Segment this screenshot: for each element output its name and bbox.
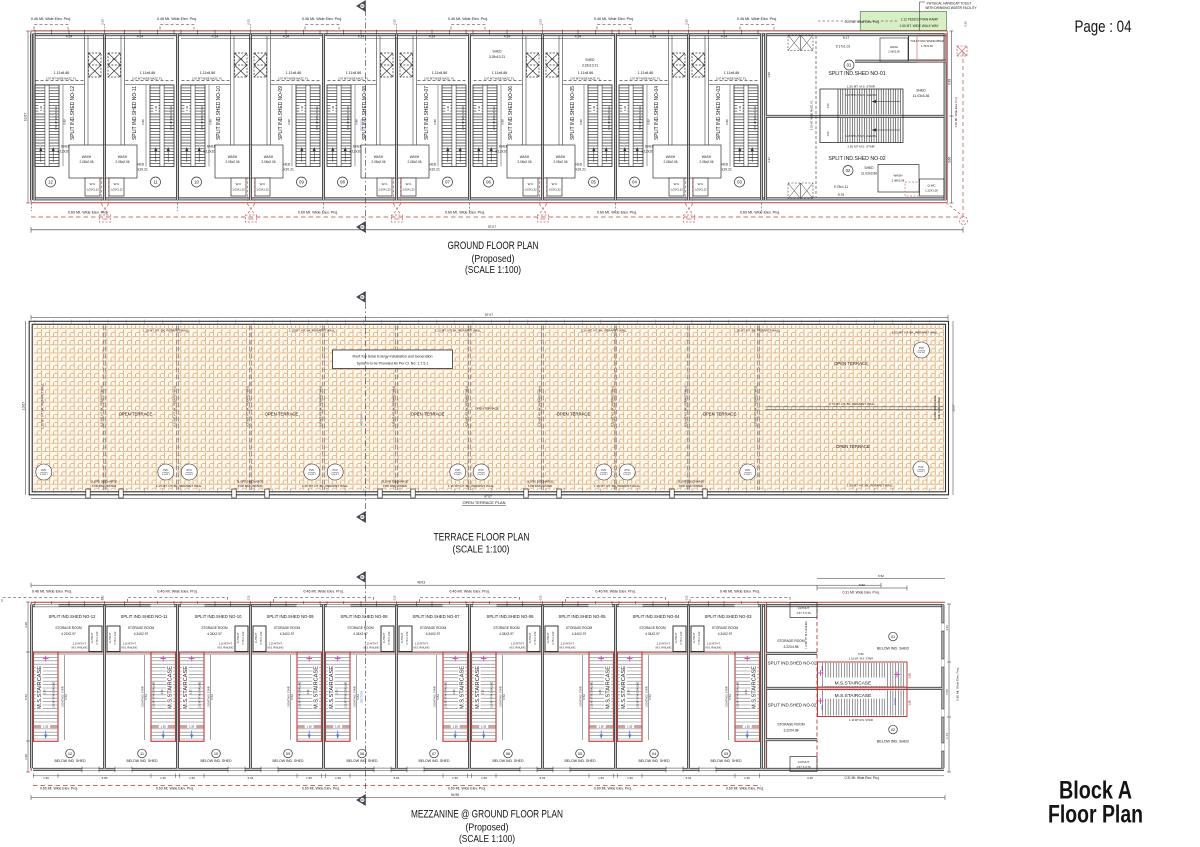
svg-text:OPEN TERRACE: OPEN TERRACE (265, 411, 299, 416)
svg-text:M.S.STAIRCASE: M.S.STAIRCASE (37, 665, 43, 709)
svg-text:2.97 MT WIDE MAZZ. FL.: 2.97 MT WIDE MAZZ. FL. (132, 76, 163, 80)
svg-text:0.23 MT. HT. BK. PERAPET WALL: 0.23 MT. HT. BK. PERAPET WALL (464, 385, 468, 427)
svg-text:0.60 Mt. Wide Elev. Proj.: 0.60 Mt. Wide Elev. Proj. (594, 787, 632, 791)
svg-text:SPLIT IND.SHED NO-11: SPLIT IND.SHED NO-11 (121, 614, 169, 619)
svg-text:M.S.STAIRCASE: M.S.STAIRCASE (751, 665, 757, 709)
svg-text:1.30: 1.30 (628, 689, 631, 694)
svg-text:0.60 Mt. Wide Elev. Proj.: 0.60 Mt. Wide Elev. Proj. (156, 787, 194, 791)
svg-text:D.H.W.T: D.H.W.T (744, 474, 753, 476)
svg-text:W.C: W.C (674, 182, 680, 186)
svg-text:1.50: 1.50 (599, 724, 605, 728)
svg-text:OPEN TERRACE: OPEN TERRACE (703, 411, 737, 416)
svg-text:RWP: RWP (102, 218, 108, 221)
svg-text:SPLIT IND.SHED NO-11: SPLIT IND.SHED NO-11 (132, 86, 138, 140)
svg-text:SPLIT IND.SHED NO-01: SPLIT IND.SHED NO-01 (768, 660, 817, 665)
svg-text:2.97 MT WIDE MAZZ. FL.: 2.97 MT WIDE MAZZ. FL. (424, 76, 455, 80)
svg-text:1.50 MT M.S. STAIR: 1.50 MT M.S. STAIR (433, 686, 436, 707)
svg-text:6.52: 6.52 (290, 694, 294, 700)
svg-text:SHED: SHED (492, 50, 502, 54)
svg-text:07: 07 (445, 180, 450, 185)
svg-text:1.00X1.22: 1.00X1.22 (524, 188, 537, 192)
svg-text:1.10 MT HT.: 1.10 MT HT. (219, 642, 233, 645)
svg-text:1.15 MT HT. M.S. RAILING: 1.15 MT HT. M.S. RAILING (845, 134, 876, 138)
svg-text:1.50 MT W.S. STAIR: 1.50 MT W.S. STAIR (346, 106, 350, 130)
svg-text:1.11x8.86: 1.11x8.86 (638, 71, 654, 75)
svg-text:W.C: W.C (114, 182, 120, 186)
svg-text:0.70 MT. HT. BK. PERAPET WALL: 0.70 MT. HT. BK. PERAPET WALL (829, 402, 876, 406)
svg-text:1.15 MT. HT. BK. PERAPET WALL: 1.15 MT. HT. BK. PERAPET WALL (435, 328, 482, 332)
svg-text:0.46 Mt. Wide Elev. Proj.: 0.46 Mt. Wide Elev. Proj. (302, 17, 342, 21)
svg-text:1.30: 1.30 (307, 689, 310, 694)
svg-text:5.80: 5.80 (102, 776, 108, 780)
svg-text:6.52: 6.52 (582, 694, 586, 700)
svg-text:0.23: 0.23 (101, 19, 105, 25)
svg-text:WASH: WASH (118, 155, 128, 159)
svg-text:9.17x1.01: 9.17x1.01 (836, 44, 851, 48)
svg-text:1.00X1.22: 1.00X1.22 (548, 188, 561, 192)
svg-text:1.10 MT HT.: 1.10 MT HT. (707, 642, 721, 645)
svg-text:9.75: 9.75 (838, 193, 845, 197)
svg-text:1.50 MT HT M.S RAILING: 1.50 MT HT M.S RAILING (491, 681, 494, 708)
svg-text:BELOW IND. SHED: BELOW IND. SHED (711, 759, 743, 763)
svg-text:STORAGE ROOM: STORAGE ROOM (201, 626, 228, 630)
svg-text:1.30: 1.30 (599, 689, 602, 694)
svg-text:WASH: WASH (890, 45, 898, 49)
svg-text:6.88: 6.88 (141, 119, 145, 125)
svg-text:1.50: 1.50 (306, 776, 312, 780)
svg-text:0.60 Mt. Wide Elev. Proj.: 0.60 Mt. Wide Elev. Proj. (302, 787, 340, 791)
svg-text:OPEN TERRACE PLAN: OPEN TERRACE PLAN (462, 500, 505, 505)
svg-text:5.52: 5.52 (878, 574, 884, 578)
svg-text:02: 02 (846, 168, 851, 173)
svg-text:BELOW IND. SHED: BELOW IND. SHED (565, 759, 597, 763)
svg-text:D.H.W.T: D.H.W.T (917, 471, 926, 473)
svg-text:02: 02 (891, 727, 895, 732)
svg-text:SPLIT IND.SHED NO-08: SPLIT IND.SHED NO-08 (341, 614, 389, 619)
svg-text:1.50 MT HT M.S RAILING: 1.50 MT HT M.S RAILING (637, 681, 640, 708)
svg-text:M.S.STAIRCASE: M.S.STAIRCASE (167, 665, 173, 709)
svg-text:4.37: 4.37 (767, 157, 771, 163)
svg-text:1.50: 1.50 (627, 776, 633, 780)
svg-text:CUTOUT: CUTOUT (237, 632, 240, 643)
svg-text:1.56: 1.56 (908, 700, 912, 706)
svg-text:0.46 Mt. Wide Elev. Proj.: 0.46 Mt. Wide Elev. Proj. (720, 590, 760, 594)
svg-text:M.S. RAILING: M.S. RAILING (510, 646, 526, 649)
svg-text:0.76 X 1.52: 0.76 X 1.52 (552, 631, 555, 644)
svg-text:1.10 MT HT.: 1.10 MT HT. (123, 642, 137, 645)
svg-text:05: 05 (578, 751, 582, 756)
svg-text:0.23 MT. HT. BK. PERAPET WALL: 0.23 MT. HT. BK. PERAPET WALL (391, 385, 395, 427)
svg-text:1.50 MT W.S. STAIR: 1.50 MT W.S. STAIR (54, 106, 58, 130)
svg-text:PVC: PVC (745, 469, 750, 472)
svg-text:1.50: 1.50 (826, 103, 830, 109)
svg-text:0.46 Mt. Wide Elev. Proj.: 0.46 Mt. Wide Elev. Proj. (594, 17, 634, 21)
svg-text:1.10 MT HT.: 1.10 MT HT. (269, 642, 283, 645)
svg-text:0.46 Mt. Wide Elev. Proj.: 0.46 Mt. Wide Elev. Proj. (737, 17, 777, 21)
svg-text:SPLIT IND.SHED NO-09: SPLIT IND.SHED NO-09 (267, 614, 315, 619)
svg-text:D.H.W.T: D.H.W.T (623, 474, 632, 476)
svg-text:4.34X2.97: 4.34X2.97 (280, 632, 295, 636)
svg-text:1.32: 1.32 (39, 105, 43, 111)
svg-text:0.23 MT. HT. BK. PERAPET WALL: 0.23 MT. HT. BK. PERAPET WALL (683, 385, 687, 427)
svg-text:1.32: 1.32 (185, 105, 189, 111)
svg-text:01: 01 (847, 63, 852, 68)
svg-text:1.50 MT W.S. STAIR: 1.50 MT W.S. STAIR (638, 106, 642, 130)
svg-text:OPEN TERRACE: OPEN TERRACE (119, 411, 153, 416)
svg-text:OPEN TERRACE: OPEN TERRACE (557, 411, 591, 416)
svg-text:11.03x3.36: 11.03x3.36 (913, 94, 930, 98)
svg-text:SHED: SHED (916, 89, 926, 93)
svg-text:2.08x2.06: 2.08x2.06 (79, 160, 93, 164)
svg-text:SPLIT IND.SHED NO-02: SPLIT IND.SHED NO-02 (768, 703, 817, 708)
svg-text:PVC: PVC (918, 466, 923, 469)
svg-text:1.50: 1.50 (43, 776, 49, 780)
svg-text:(Proposed): (Proposed) (466, 823, 509, 834)
svg-text:SLOPE DISCHARGE: SLOPE DISCHARGE (382, 479, 409, 483)
svg-text:1.11x8.86: 1.11x8.86 (432, 71, 448, 75)
svg-text:OPEN TERRACE: OPEN TERRACE (475, 407, 499, 411)
svg-text:01: 01 (891, 634, 895, 639)
svg-text:1.00X1.22: 1.00X1.22 (402, 188, 415, 192)
svg-text:0.76 X 1.52: 0.76 X 1.52 (698, 631, 701, 644)
svg-text:1.32: 1.32 (331, 105, 335, 111)
svg-text:1.15 MT. HT. BK. PERAPET WALL: 1.15 MT. HT. BK. PERAPET WALL (156, 484, 203, 488)
svg-text:2.97 MT WIDE MAZZ. FL.: 2.97 MT WIDE MAZZ. FL. (630, 76, 661, 80)
svg-text:0.23: 0.23 (393, 19, 397, 25)
svg-text:PVC: PVC (625, 469, 630, 472)
svg-text:W.C: W.C (260, 182, 266, 186)
svg-text:STORAGE ROOM: STORAGE ROOM (712, 626, 739, 630)
svg-text:1.55 MT. HT. BK. PERAPET WALL: 1.55 MT. HT. BK. PERAPET WALL (847, 483, 894, 487)
svg-text:12: 12 (68, 751, 72, 756)
svg-text:6.88: 6.88 (287, 119, 291, 125)
svg-text:3.23x10.21: 3.23x10.21 (582, 64, 598, 68)
svg-text:PVC: PVC (309, 469, 314, 472)
svg-text:D.H.W.T: D.H.W.T (918, 352, 927, 354)
svg-text:4.80: 4.80 (767, 72, 771, 78)
svg-text:1.15 MT. HT. BK. PERAPET WALL: 1.15 MT. HT. BK. PERAPET WALL (143, 328, 190, 332)
svg-text:OPEN TERRACE: OPEN TERRACE (834, 361, 868, 366)
svg-text:1.10 MT HT.: 1.10 MT HT. (511, 642, 525, 645)
svg-text:WASH: WASH (520, 155, 530, 159)
svg-text:6.52: 6.52 (144, 694, 148, 700)
svg-text:0.76 X 1.52: 0.76 X 1.52 (260, 631, 263, 644)
svg-text:CUTOUT: CUTOUT (255, 632, 258, 643)
svg-text:1.55 MT. HT. BK. PERAPET WALL: 1.55 MT. HT. BK. PERAPET WALL (892, 330, 939, 334)
svg-text:1.32: 1.32 (300, 105, 304, 111)
svg-text:D.H.W.T: D.H.W.T (40, 474, 49, 476)
svg-text:10: 10 (194, 180, 199, 185)
svg-text:FOR RAIN WATER: FOR RAIN WATER (238, 484, 262, 488)
svg-text:1.00X1.22: 1.00X1.22 (232, 188, 245, 192)
svg-text:SLOPE DISCHARGE: SLOPE DISCHARGE (678, 479, 705, 483)
svg-text:0.76 X 1.52: 0.76 X 1.52 (114, 631, 117, 644)
svg-text:1.15 MT. HT. BK. PERAPET WALL: 1.15 MT. HT. BK. PERAPET WALL (302, 484, 349, 488)
svg-text:03: 03 (737, 180, 742, 185)
svg-text:1.50 MT W.S. STAIR: 1.50 MT W.S. STAIR (315, 106, 319, 130)
svg-text:M.S.STAIRCASE: M.S.STAIRCASE (621, 665, 627, 709)
svg-text:4.34: 4.34 (66, 35, 73, 39)
svg-text:BELOW IND. SHED: BELOW IND. SHED (877, 740, 910, 744)
svg-text:49.03: 49.03 (417, 581, 425, 585)
svg-text:SECTION: SECTION (359, 414, 363, 426)
svg-text:1.50: 1.50 (161, 724, 167, 728)
svg-text:1.50: 1.50 (745, 724, 751, 728)
svg-text:CUTOUT: CUTOUT (529, 632, 532, 643)
svg-text:1.50 MT W.S. STAIR: 1.50 MT W.S. STAIR (607, 106, 611, 130)
svg-text:3.45: 3.45 (807, 776, 813, 780)
svg-text:PVC: PVC (919, 347, 924, 350)
svg-text:4.34: 4.34 (137, 35, 144, 39)
svg-text:4.34: 4.34 (575, 35, 582, 39)
svg-text:1.11x8.86: 1.11x8.86 (54, 71, 70, 75)
svg-text:WASH: WASH (666, 155, 676, 159)
svg-text:3.25x10.21: 3.25x10.21 (489, 55, 505, 59)
svg-text:6.88: 6.88 (725, 119, 729, 125)
svg-text:1.50: 1.50 (452, 776, 458, 780)
svg-text:0.76 X 1.52: 0.76 X 1.52 (680, 631, 683, 644)
svg-text:1.00X1.22: 1.00X1.22 (110, 188, 123, 192)
svg-text:System to be Provided As Per C: System to be Provided As Per Cl. No: 1.7… (357, 361, 429, 365)
svg-text:1.50: 1.50 (335, 724, 341, 728)
svg-text:54.96: 54.96 (451, 793, 459, 797)
svg-text:PVC: PVC (479, 469, 484, 472)
svg-text:OPEN TERRACE: OPEN TERRACE (411, 411, 445, 416)
svg-text:SHED: SHED (585, 58, 595, 62)
svg-text:4.34: 4.34 (358, 35, 365, 39)
svg-text:1.15 MT. HT. BK. PERAPET WALL: 1.15 MT. HT. BK. PERAPET WALL (41, 383, 45, 430)
svg-text:2.08x2.06: 2.08x2.06 (553, 160, 567, 164)
svg-text:6.52: 6.52 (210, 694, 214, 700)
svg-text:PVC: PVC (163, 469, 168, 472)
svg-text:3.22X4.98: 3.22X4.98 (783, 728, 798, 732)
svg-text:1.50: 1.50 (335, 776, 341, 780)
svg-text:0.23: 0.23 (102, 595, 105, 600)
svg-text:1.10 MT. M.S. STAIR: 1.10 MT. M.S. STAIR (849, 657, 873, 661)
svg-text:M.S. RAILING: M.S. RAILING (72, 646, 88, 649)
svg-text:D.H.W.T: D.H.W.T (308, 474, 317, 476)
svg-text:4.34: 4.34 (721, 35, 728, 39)
svg-text:07: 07 (432, 751, 436, 756)
svg-text:0.60 Mt. Wide Elev. Proj.: 0.60 Mt. Wide Elev. Proj. (445, 210, 485, 214)
svg-text:4.34X2.97: 4.34X2.97 (572, 632, 587, 636)
svg-text:M.S.STAIRCASE: M.S.STAIRCASE (605, 665, 611, 709)
svg-text:0.21 Mt. Wide Elev. Proj.: 0.21 Mt. Wide Elev. Proj. (845, 20, 880, 24)
svg-text:CUTOUT: CUTOUT (401, 632, 404, 643)
svg-text:1.50 MT W.S. STAIR: 1.50 MT W.S. STAIR (200, 106, 204, 130)
svg-text:1.50 MT W.S. STAIR: 1.50 MT W.S. STAIR (461, 106, 465, 130)
svg-text:3.20: 3.20 (24, 622, 28, 628)
svg-text:1.50 MT W.S. STAIR: 1.50 MT W.S. STAIR (169, 106, 173, 130)
svg-text:1.00X1.22: 1.00X1.22 (256, 188, 269, 192)
svg-text:Q-WC: Q-WC (927, 183, 935, 187)
svg-text:0.60 Mt. Wide Elev. Proj.: 0.60 Mt. Wide Elev. Proj. (597, 210, 637, 214)
svg-text:10.67: 10.67 (952, 404, 956, 412)
svg-text:SLOPE DISCHARGE: SLOPE DISCHARGE (91, 479, 118, 483)
svg-text:CUTOUT: CUTOUT (675, 632, 678, 643)
svg-text:0.76 X 1.52: 0.76 X 1.52 (388, 631, 391, 644)
svg-text:1.11x8.86: 1.11x8.86 (140, 71, 156, 75)
svg-text:1.57 X 0.76: 1.57 X 0.76 (796, 611, 811, 615)
svg-text:Floor Plan: Floor Plan (1048, 802, 1143, 829)
svg-text:STORAGE ROOM: STORAGE ROOM (777, 639, 804, 643)
svg-text:1.50 MT M.S. STAIR: 1.50 MT M.S. STAIR (499, 686, 502, 707)
svg-text:OPEN TERRACE: OPEN TERRACE (836, 444, 870, 449)
svg-text:4.34: 4.34 (650, 35, 657, 39)
svg-text:1.50: 1.50 (307, 724, 313, 728)
svg-text:WASH: WASH (894, 174, 903, 178)
svg-text:1.15 MT. HT. BK. PERAPET WALL: 1.15 MT. HT. BK. PERAPET WALL (581, 328, 628, 332)
svg-text:2.08x2.06: 2.08x2.06 (663, 160, 677, 164)
svg-text:11: 11 (140, 751, 144, 756)
svg-text:GROUND FLOOR PLAN: GROUND FLOOR PLAN (448, 240, 539, 252)
svg-text:1.58: 1.58 (908, 673, 912, 679)
svg-text:1.30: 1.30 (161, 689, 164, 694)
svg-text:M.S.STAIRCASE: M.S.STAIRCASE (835, 680, 872, 686)
svg-text:1.11x8.86: 1.11x8.86 (724, 71, 740, 75)
svg-text:1.50: 1.50 (189, 724, 195, 728)
svg-text:0.23: 0.23 (394, 595, 397, 600)
svg-text:4.34X2.97: 4.34X2.97 (134, 632, 149, 636)
svg-text:1.11x8.86: 1.11x8.86 (578, 71, 594, 75)
svg-text:1.50: 1.50 (744, 776, 750, 780)
svg-text:3.22X4.98: 3.22X4.98 (783, 645, 798, 649)
svg-text:0.23 MT. HT. BK. PERAPET WALL: 0.23 MT. HT. BK. PERAPET WALL (245, 385, 249, 427)
svg-text:1.50 MT W.S. STAIR: 1.50 MT W.S. STAIR (753, 106, 757, 130)
svg-text:2.08x2.06: 2.08x2.06 (517, 160, 531, 164)
svg-text:1.50: 1.50 (481, 724, 487, 728)
svg-text:SPLIT IND.SHED NO-03: SPLIT IND.SHED NO-03 (716, 86, 722, 140)
svg-text:0.46 Mt. Wide Elev. Proj.: 0.46 Mt. Wide Elev. Proj. (595, 590, 635, 594)
svg-text:1.50 MT HT M.S RAILING: 1.50 MT HT M.S RAILING (444, 681, 447, 708)
svg-text:1.10 MT HT.: 1.10 MT HT. (657, 642, 671, 645)
svg-text:6.52: 6.52 (648, 694, 652, 700)
svg-text:1.15 MT HT. M.S. RAILING: 1.15 MT HT. M.S. RAILING (845, 93, 876, 97)
svg-text:2.97 MT WIDE MAZZ. FL.: 2.97 MT WIDE MAZZ. FL. (570, 76, 601, 80)
svg-text:0.46 Mt. Wide Elev. Proj.: 0.46 Mt. Wide Elev. Proj. (32, 590, 72, 594)
svg-text:STORAGE ROOM: STORAGE ROOM (128, 626, 155, 630)
svg-text:BELOW IND. SHED: BELOW IND. SHED (639, 759, 671, 763)
svg-text:0.46 Mt. Wide Elev. Proj.: 0.46 Mt. Wide Elev. Proj. (157, 590, 197, 594)
svg-text:SPLIT IND.SHED NO-02: SPLIT IND.SHED NO-02 (828, 156, 885, 162)
svg-text:1.15 MT. HT. BK. PERAPET WALL: 1.15 MT. HT. BK. PERAPET WALL (734, 328, 781, 332)
svg-text:SPLIT IND.SHED NO-07: SPLIT IND.SHED NO-07 (424, 86, 430, 140)
svg-text:4.34X2.97: 4.34X2.97 (499, 632, 514, 636)
svg-text:97.07: 97.07 (485, 313, 493, 317)
svg-text:1.11x8.86: 1.11x8.86 (286, 71, 302, 75)
svg-text:RWP: RWP (540, 218, 546, 221)
svg-text:0.31 Mt. Wide Elev. Proj.: 0.31 Mt. Wide Elev. Proj. (845, 776, 880, 780)
svg-text:0.23: 0.23 (540, 595, 543, 600)
svg-text:2.97 MT WIDE MAZZ. FL.: 2.97 MT WIDE MAZZ. FL. (484, 76, 515, 80)
svg-text:1.10 MT HT.: 1.10 MT HT. (365, 642, 379, 645)
svg-text:FOR RAIN WATER: FOR RAIN WATER (679, 484, 703, 488)
svg-text:1.50: 1.50 (43, 724, 49, 728)
svg-text:1.10 MT HT.: 1.10 MT HT. (73, 642, 87, 645)
svg-text:WITH DRINKING WATER FACILITY: WITH DRINKING WATER FACILITY (925, 6, 977, 10)
svg-text:2.08X2.08: 2.08X2.08 (892, 179, 905, 183)
svg-text:0.60 Mt. Wide Elev. Proj.: 0.60 Mt. Wide Elev. Proj. (726, 787, 764, 791)
svg-text:1.15 MT. HT. BK. PERAPET WALL: 1.15 MT. HT. BK. PERAPET WALL (448, 484, 495, 488)
svg-text:0.46 Mt. Wide Elev. Proj.: 0.46 Mt. Wide Elev. Proj. (449, 590, 489, 594)
svg-text:4.34: 4.34 (504, 35, 511, 39)
svg-text:0.60 Mt. Wide Elev. Proj.: 0.60 Mt. Wide Elev. Proj. (956, 667, 960, 701)
svg-text:M.S. RAILING: M.S. RAILING (218, 646, 234, 649)
svg-text:08: 08 (360, 751, 364, 756)
svg-text:0.31 Mt. Wide Elev. Proj.: 0.31 Mt. Wide Elev. Proj. (842, 591, 879, 595)
svg-text:3.72: 3.72 (945, 625, 949, 631)
svg-text:1.32: 1.32 (592, 105, 596, 111)
svg-text:TERRACE FLOOR PLAN: TERRACE FLOOR PLAN (434, 532, 530, 544)
svg-text:RWP: RWP (248, 218, 254, 221)
svg-text:SPLIT IND.SHED NO-10: SPLIT IND.SHED NO-10 (216, 86, 222, 140)
svg-text:09: 09 (286, 751, 290, 756)
svg-text:SLOPE DISCHARGE: SLOPE DISCHARGE (237, 479, 264, 483)
svg-text:WASH: WASH (410, 155, 420, 159)
svg-text:2.08X2.08: 2.08X2.08 (888, 51, 900, 54)
svg-text:6.88: 6.88 (62, 119, 66, 125)
svg-text:1.50 MT M.S. STAIR: 1.50 MT M.S. STAIR (579, 686, 582, 707)
svg-text:0.23: 0.23 (248, 595, 251, 600)
svg-text:M.S. RAILING: M.S. RAILING (364, 646, 380, 649)
svg-text:06: 06 (486, 180, 491, 185)
svg-text:CUTOUT: CUTOUT (547, 632, 550, 643)
svg-text:2.08x2.06: 2.08x2.06 (225, 160, 239, 164)
svg-text:4.34: 4.34 (429, 35, 436, 39)
svg-text:9.17: 9.17 (843, 36, 850, 40)
svg-text:1.00X1.22: 1.00X1.22 (378, 188, 391, 192)
svg-text:1.00X1.22: 1.00X1.22 (86, 188, 99, 192)
svg-text:SPLIT IND.SHED NO-04: SPLIT IND.SHED NO-04 (654, 86, 660, 140)
svg-text:M.S.STAIRCASE: M.S.STAIRCASE (835, 693, 872, 699)
svg-text:0.23: 0.23 (539, 19, 543, 25)
svg-text:4.34X2.97: 4.34X2.97 (718, 632, 733, 636)
svg-text:0.23 MT. HT. BK. PERAPET WALL: 0.23 MT. HT. BK. PERAPET WALL (537, 385, 541, 427)
svg-text:5.91: 5.91 (394, 776, 400, 780)
svg-text:WASH: WASH (374, 155, 384, 159)
svg-text:4.34X2.97: 4.34X2.97 (426, 632, 441, 636)
svg-text:1.50 MT HT M.S RAILING: 1.50 MT HT M.S RAILING (736, 681, 739, 708)
svg-text:STORAGE ROOM: STORAGE ROOM (274, 626, 301, 630)
svg-text:BELOW IND. SHED: BELOW IND. SHED (273, 759, 305, 763)
svg-text:0.23: 0.23 (247, 19, 251, 25)
svg-text:RWP: RWP (686, 218, 692, 221)
svg-text:1.30: 1.30 (190, 689, 193, 694)
svg-text:6.88: 6.88 (354, 119, 358, 125)
svg-text:W: W (962, 219, 965, 223)
svg-text:0.76 X 1.52: 0.76 X 1.52 (534, 631, 537, 644)
svg-text:3.38: 3.38 (947, 79, 951, 85)
svg-text:(SCALE 1:100): (SCALE 1:100) (453, 545, 510, 556)
svg-text:MEZZANINE @ GROUND FLOOR PLAN: MEZZANINE @ GROUND FLOOR PLAN (411, 809, 563, 821)
svg-text:0.23 MT. HT. BK. PERAPET WALL: 0.23 MT. HT. BK. PERAPET WALL (610, 385, 614, 427)
svg-text:0.23: 0.23 (686, 595, 689, 600)
svg-text:PVC: PVC (601, 469, 606, 472)
svg-text:4.34X2.97: 4.34X2.97 (207, 632, 222, 636)
svg-text:0.20: 0.20 (964, 21, 968, 27)
svg-text:1.50: 1.50 (453, 724, 459, 728)
svg-text:0.60 Mt. Wide Elev. Proj.: 0.60 Mt. Wide Elev. Proj. (954, 96, 958, 127)
svg-text:0.76 X 1.52: 0.76 X 1.52 (242, 631, 245, 644)
svg-text:1.75X1.50: 1.75X1.50 (921, 44, 933, 48)
svg-text:SPLIT IND.SHED NO-12: SPLIT IND.SHED NO-12 (49, 614, 97, 619)
svg-text:CUTOUT: CUTOUT (798, 760, 810, 764)
svg-text:M.S. RAILING: M.S. RAILING (268, 646, 284, 649)
svg-text:2.97 MT WIDE MAZZ. FL.: 2.97 MT WIDE MAZZ. FL. (46, 76, 77, 80)
svg-text:1.56: 1.56 (945, 689, 949, 695)
svg-text:1.11x8.86: 1.11x8.86 (492, 71, 508, 75)
svg-text:4.34: 4.34 (283, 35, 290, 39)
